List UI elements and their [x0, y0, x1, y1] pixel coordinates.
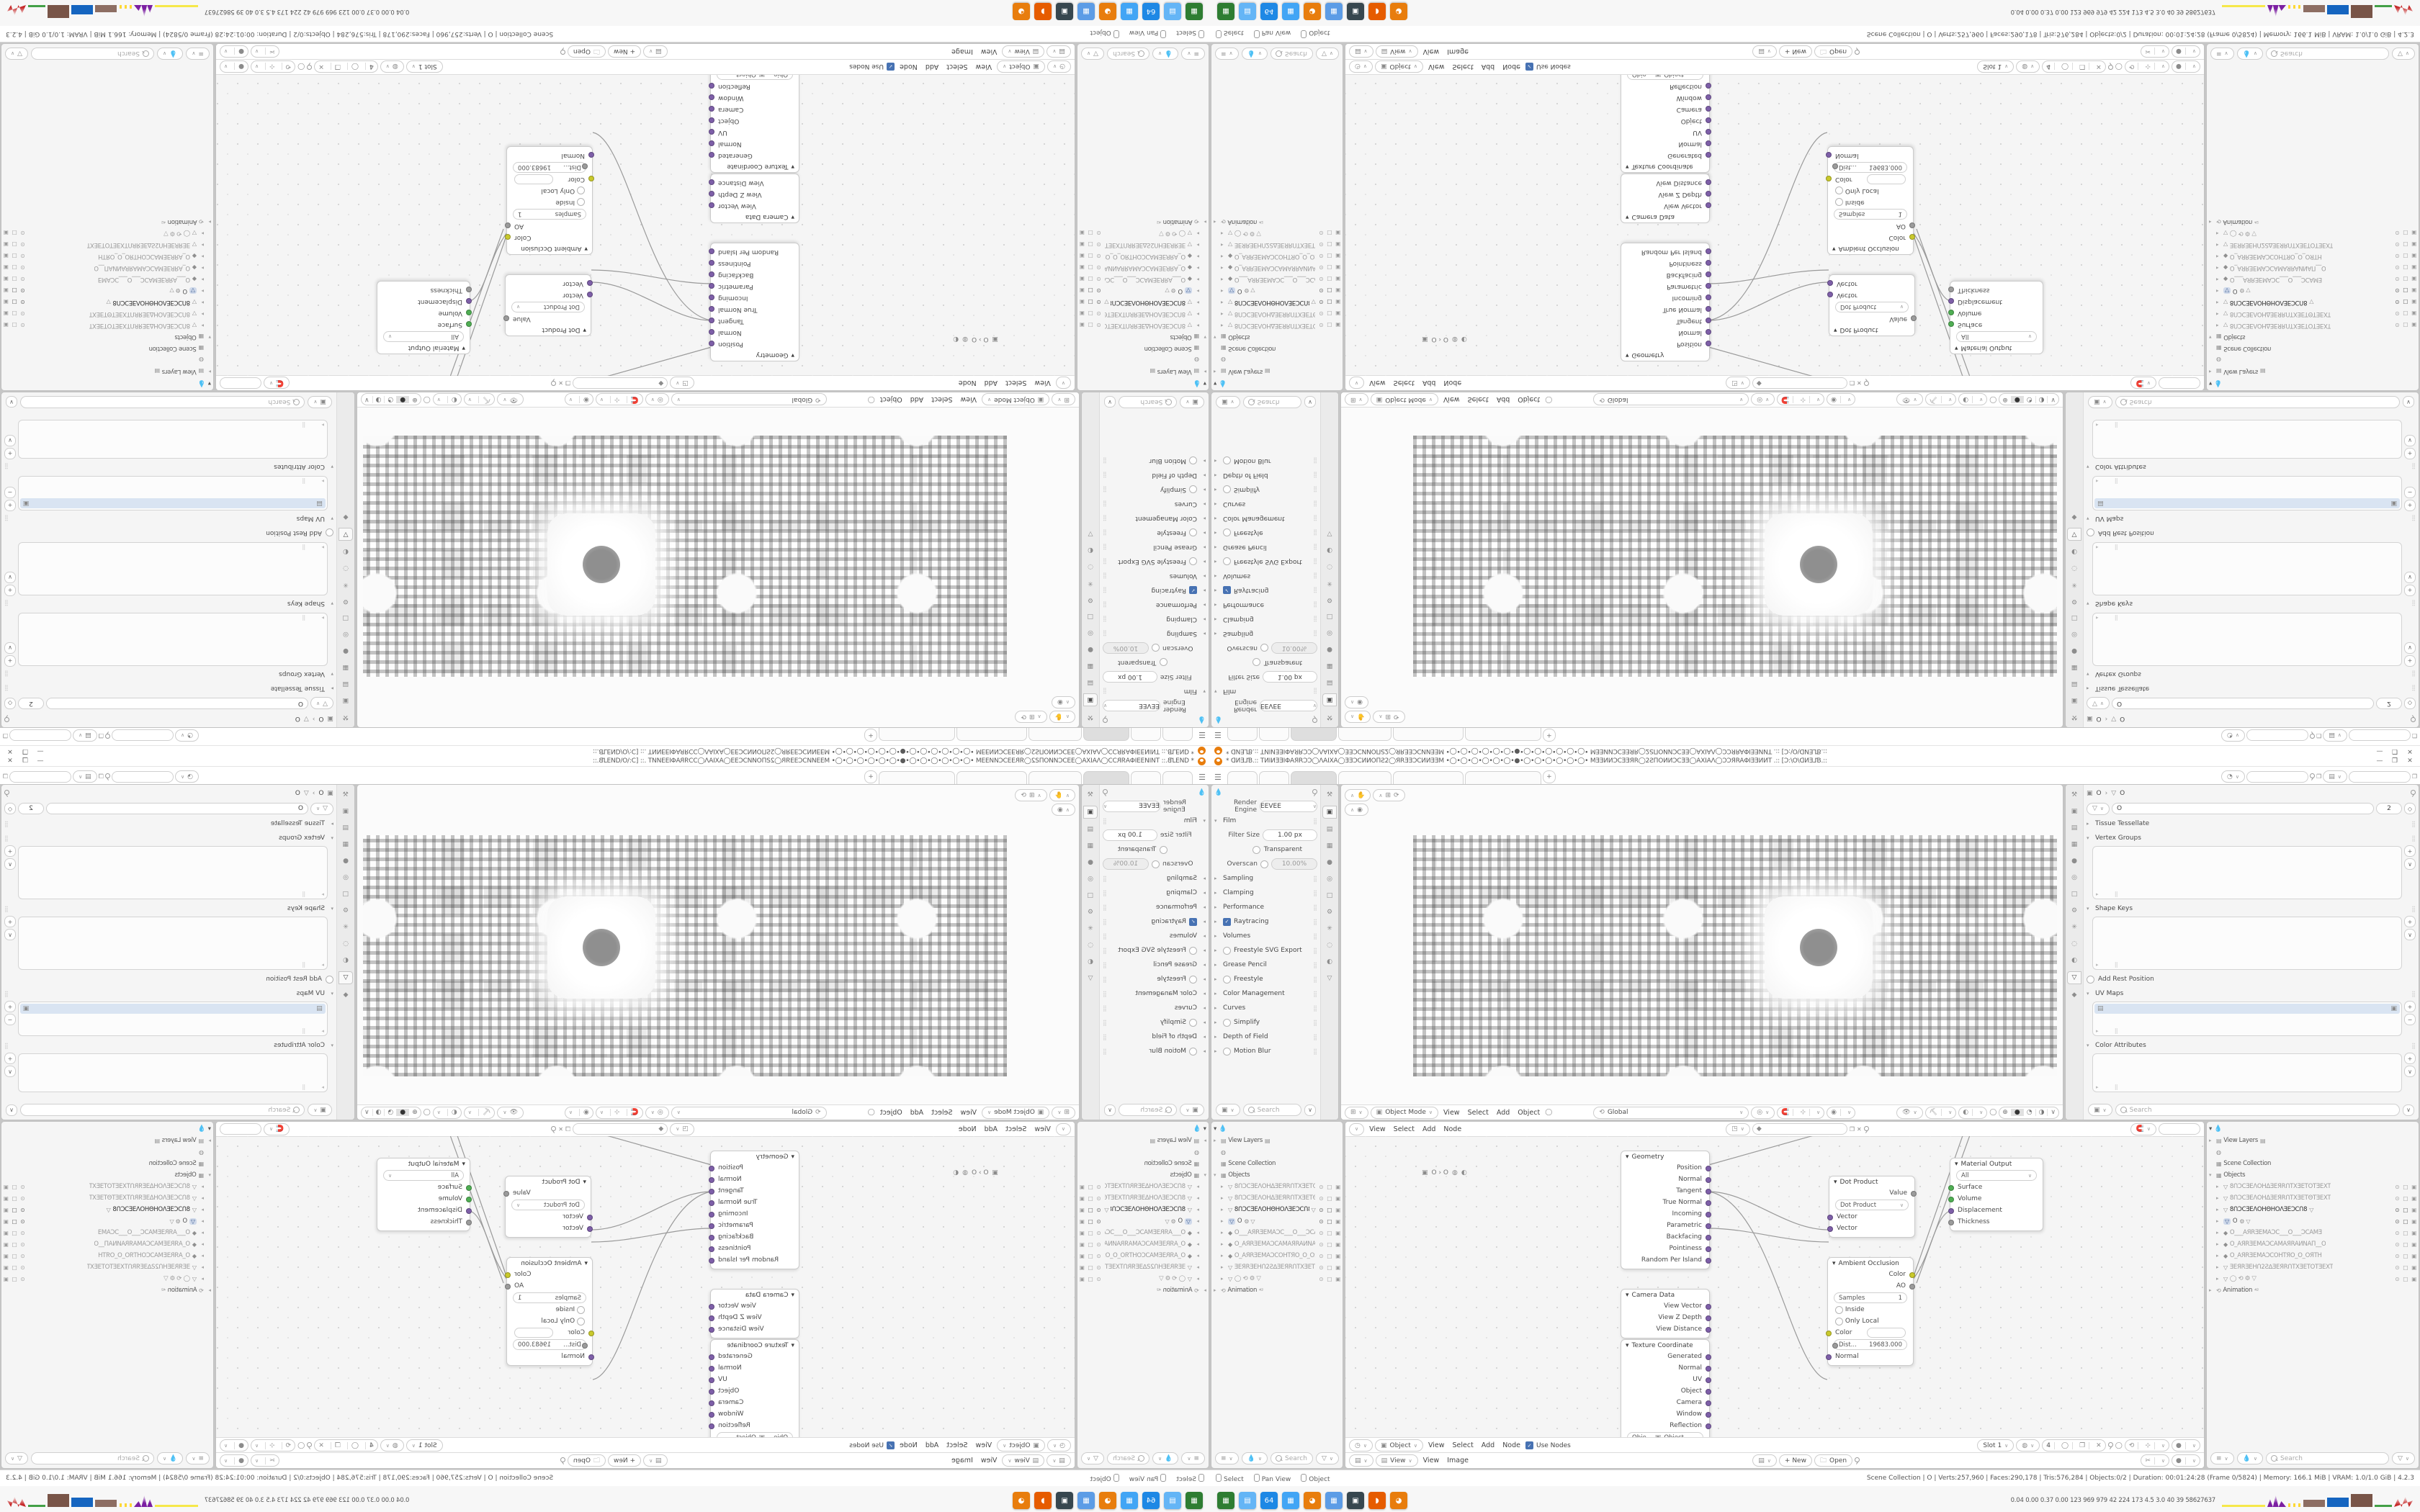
editor-type-dropdown[interactable]: ∨ [1056, 1123, 1071, 1135]
image-datablock-field[interactable]: 4 ◯ ❐ ✕ [2042, 60, 2105, 73]
shape-keys-list[interactable]: ▸ ⣿ [18, 542, 328, 595]
image-browse-dropdown[interactable]: ◍∨ [380, 1439, 404, 1452]
hide-eye-icon[interactable]: ⊙ [1097, 253, 1103, 260]
add-workspace-button[interactable]: + [1543, 770, 1556, 783]
node-title[interactable]: ▾Camera Data [711, 1290, 799, 1300]
editor-type-dropdown[interactable]: ⊞∨ [1052, 1107, 1075, 1119]
render-section-volumes[interactable]: ▸Volumes⣿ [1103, 569, 1206, 583]
minimize-button[interactable]: — [35, 747, 46, 755]
physics-properties-tab-icon[interactable]: ◌ [2068, 938, 2081, 950]
node-title[interactable]: ▾Ambient Occlusion [1828, 1258, 1913, 1269]
footer-menu-add[interactable]: Add [1479, 1441, 1497, 1449]
data-properties-tab-icon[interactable]: ▽ [2067, 971, 2081, 984]
workspace-tab[interactable] [1338, 728, 1391, 741]
image-new-icon[interactable]: ◯ [2058, 63, 2073, 71]
filter-funnel-dropdown[interactable]: ▽∨ [5, 1452, 28, 1464]
outliner-row-view-layers[interactable]: ▸▤View Layers▤ [1214, 366, 1340, 377]
outliner-object-row[interactable]: ▸▽◯ ⟲ ⚙ ▽⊙□▣ [4, 228, 211, 239]
filter-dropdown[interactable]: 💧∨ [2237, 1452, 2263, 1464]
outliner-object-row[interactable]: ▸◆O___AЯRƎEMAƆC___O___ƆCAMƎ⊙□▣ [1080, 274, 1206, 285]
object-properties-tab-icon[interactable]: □ [1323, 890, 1336, 901]
socket-distance[interactable] [1832, 1343, 1838, 1349]
taskbar-app-calculator[interactable]: ▦ [1282, 1492, 1299, 1509]
add-rest-position-toggle[interactable] [2087, 529, 2094, 537]
maximize-button[interactable]: ❐ [2389, 747, 2401, 755]
scene-browse-dropdown[interactable]: ◔∨ [2221, 729, 2245, 742]
material-browse-dropdown[interactable]: ◳∨ [670, 1123, 694, 1135]
ao-inside-toggle[interactable]: Inside [1828, 1304, 1913, 1315]
render-properties-tab-icon[interactable]: ▣ [1083, 693, 1098, 706]
footer-proportional-group[interactable]: ●∨ [220, 1439, 248, 1452]
disable-render-icon[interactable]: ▣ [1080, 276, 1086, 283]
socket-window[interactable] [709, 94, 714, 100]
display-mode-dropdown[interactable]: ≡∨ [1215, 1452, 1239, 1464]
film-section-header[interactable]: ▾Film⣿ [1214, 814, 1317, 828]
fake-user-shield-button[interactable]: ◇ [2404, 803, 2416, 814]
node-geometry[interactable]: ▾GeometryPositionNormalTangentTrue Norma… [710, 1151, 799, 1269]
node-ambient-occlusion[interactable]: ▾Ambient OcclusionColorAOSamples1 Inside… [506, 146, 593, 255]
node-canvas[interactable]: ▣O › O◍◐ ▾GeometryPositionNormalTangentT… [216, 74, 1075, 376]
viewport-3d[interactable]: ∧✋ ∧⊞⟳ ∧◉ ⊞∨ ▣Object Mode∨ View Select A… [1340, 392, 2063, 728]
socket-displacement[interactable] [1948, 1208, 1954, 1214]
outliner-object-row[interactable]: ▸▽O⚙ ▽⊙□▣ [4, 1215, 211, 1227]
mesh-browse-dropdown[interactable]: ▽∨ [2087, 698, 2110, 710]
properties-editor-icon[interactable]: 💧 [1198, 789, 1206, 796]
disable-render-icon[interactable]: ▣ [1334, 288, 1340, 294]
uvmap-add-button[interactable]: + [4, 1001, 16, 1012]
disable-viewport-icon[interactable]: □ [1325, 253, 1332, 260]
colorattr-specials-button[interactable]: ∨ [2404, 1066, 2416, 1077]
node-menu-select[interactable]: Select [1003, 1125, 1029, 1133]
socket-vector[interactable] [1827, 1226, 1833, 1232]
ao-only-local-toggle[interactable]: Only Local [507, 1315, 592, 1327]
disable-render-icon[interactable]: ▣ [4, 230, 10, 237]
footer-snap-group[interactable]: ⟲⊹∨ [2125, 1439, 2169, 1452]
close-button[interactable]: ✕ [4, 747, 16, 755]
outliner-object-row[interactable]: ▸▽8ՈƆCƎEΛOHΔƎEЯRՈTXƎETOTƎEXT⊙□▣ [1080, 320, 1206, 331]
socket-generated[interactable] [709, 1354, 714, 1360]
hide-eye-icon[interactable]: ⊙ [1097, 300, 1103, 306]
viewport-menu-add[interactable]: Add [1494, 1109, 1512, 1117]
image-copy-icon[interactable]: ❐ [2076, 63, 2089, 71]
ao-color-swatch[interactable] [1867, 174, 1906, 184]
shader-node-editor[interactable]: ∨ View Select Add Node ◳∨ ◆ ❐ ✕ 🧲∨ [1345, 1121, 2205, 1469]
render-section-volumes[interactable]: ▸Volumes⣿ [1103, 929, 1206, 943]
render-section-clamping[interactable]: ▸Clamping⣿ [1103, 886, 1206, 900]
socket-incoming[interactable] [1706, 1212, 1711, 1218]
render-properties-tab-icon[interactable]: ▣ [2068, 695, 2081, 706]
constraints-properties-tab-icon[interactable]: ◐ [1084, 544, 1097, 556]
gizmo-toggle[interactable]: ∧⊞⟳ [1015, 711, 1047, 723]
render-section-raytracing[interactable]: ▸✓Raytracing⣿ [1214, 914, 1317, 929]
uv-camera-icon[interactable]: ▣ [2390, 1005, 2397, 1012]
overlays-dropdown[interactable]: ◐∨ [1958, 394, 1987, 406]
pin-footer-icon[interactable] [307, 63, 312, 71]
disable-render-icon[interactable]: ▣ [2410, 253, 2416, 260]
socket-backfacing[interactable] [1706, 271, 1711, 277]
socket-tangent[interactable] [1706, 1189, 1711, 1194]
outliner-object-row[interactable]: ▸▽8ՈƆCƎEΛOHΔƎEЯRՈTXƎETΘTƎEXT⊙□▣ [4, 1192, 211, 1204]
socket-generated[interactable] [1706, 1354, 1711, 1360]
disable-render-icon[interactable]: ▣ [4, 311, 10, 318]
shapekey-specials-button[interactable]: ∨ [2404, 929, 2416, 940]
tissue-tessellate-section[interactable]: ▸Tissue Tessellate⣿ [2087, 681, 2416, 696]
node-title[interactable]: ▾Geometry [1621, 350, 1709, 361]
taskbar-app-file-manager[interactable]: ▦ [1217, 3, 1234, 20]
physics-properties-tab-icon[interactable]: ◌ [1323, 561, 1336, 572]
outliner-object-row[interactable]: ▸◆O_AЯRƎEMAƆCAMAЯRAИNAΠ__O⊙□▣ [1214, 262, 1340, 274]
outliner-object-row[interactable]: ▸◆O___AЯRƎEMAƆC___O___ƆCAMƎ⊙□▣ [2209, 274, 2416, 285]
disable-viewport-icon[interactable]: □ [12, 1253, 19, 1259]
hide-eye-icon[interactable]: ⊙ [1097, 1276, 1103, 1282]
overscan-toggle[interactable] [1152, 860, 1160, 868]
render-section-color-management[interactable]: ▸Color Management⣿ [1103, 511, 1206, 526]
material-browse-dropdown[interactable]: ◳∨ [1726, 377, 1750, 390]
viewport-menu-add[interactable]: Add [1494, 396, 1512, 404]
close-button[interactable]: ✕ [4, 757, 16, 765]
disable-render-icon[interactable]: ▣ [1080, 1230, 1086, 1236]
socket-tangent[interactable] [709, 318, 714, 323]
node-camera-data[interactable]: ▾Camera DataView VectorView Z DepthView … [1621, 1289, 1710, 1338]
outliner-row-objects[interactable]: ▾▦Objects [2209, 1169, 2416, 1181]
hide-eye-icon[interactable]: ⊙ [21, 1264, 27, 1271]
fake-user-shield-button[interactable]: ◇ [2404, 698, 2416, 709]
footer-circle-icon[interactable]: ◯ [297, 1442, 305, 1449]
unlink-material-icon[interactable]: ✕ [1857, 380, 1862, 387]
render-section-motion-blur[interactable]: ▸Motion Blur⣿ [1103, 454, 1206, 468]
outliner-object-row[interactable]: ▸▽ƎEЯRƎEHՈ2Ƨ∆ƎEЯRՈTXƎETOTƎEXT⊙□▣ [1214, 1261, 1340, 1273]
hide-eye-icon[interactable]: ⊙ [21, 323, 27, 329]
viewlayer-properties-tab-icon[interactable]: ▦ [339, 662, 352, 673]
shader-type-dropdown[interactable]: ◷∨ [1349, 60, 1373, 73]
particles-properties-tab-icon[interactable]: ✳ [2068, 922, 2081, 933]
footer-menu-node[interactable]: Node [897, 1441, 920, 1449]
mesh-browse-dropdown[interactable]: ▽∨ [310, 803, 333, 815]
socket-backfacing[interactable] [709, 1235, 714, 1241]
ao-distance-field[interactable]: Dist...19683.000 [513, 1339, 586, 1350]
object-properties-tab-icon[interactable]: □ [339, 612, 352, 624]
properties-options-button[interactable]: ∨ [6, 1104, 17, 1116]
texcoord-object-field[interactable]: Obje...▣Object [1627, 74, 1703, 80]
editor-type-button[interactable]: ▣∨ [2088, 396, 2112, 408]
tissue-tessellate-section[interactable]: ▸Tissue Tessellate⣿ [4, 816, 333, 831]
outliner-row-scene-collection[interactable]: ▦Scene Collection [1080, 343, 1206, 354]
disable-viewport-icon[interactable]: □ [12, 253, 19, 260]
viewport-menu-add[interactable]: Add [907, 396, 926, 404]
socket-surface[interactable] [466, 1185, 472, 1191]
socket-distance[interactable] [1832, 163, 1838, 169]
toggle-icon[interactable] [1223, 1048, 1231, 1056]
disable-viewport-icon[interactable]: □ [1325, 1195, 1332, 1202]
snap-extra-field[interactable] [2159, 1123, 2200, 1135]
toolbar-toggle[interactable]: ∧✋ [1049, 789, 1075, 801]
tool-properties-tab-icon[interactable]: ⚒ [1084, 711, 1097, 723]
image-new-button[interactable]: + New [1779, 1454, 1812, 1467]
fake-user-shield-button[interactable]: ◇ [4, 803, 16, 814]
render-engine-dropdown[interactable]: EEVEE∨ [1103, 700, 1160, 711]
shading-material-button[interactable]: ◔ [2024, 1109, 2036, 1116]
socket-pointiness[interactable] [1706, 260, 1711, 266]
copy-viewlayer-icon[interactable]: ❐ [2412, 732, 2417, 739]
editor-type-button[interactable]: ▣∨ [308, 1104, 332, 1116]
disable-render-icon[interactable]: ▣ [1334, 1253, 1340, 1259]
socket-vector[interactable] [587, 280, 593, 286]
shape-keys-list[interactable]: ▸ ⣿ [18, 917, 328, 970]
disable-viewport-icon[interactable]: □ [1325, 265, 1332, 271]
breadcrumb-data[interactable]: O [295, 715, 300, 722]
filter-funnel-dropdown[interactable]: ▽∨ [1316, 48, 1339, 60]
transparent-toggle[interactable] [1160, 659, 1168, 667]
socket-view-z-depth[interactable] [709, 191, 714, 197]
shader-node-editor[interactable]: ∨ View Select Add Node ◳∨ ◆ ❐ ✕ 🧲∨ [215, 1121, 1075, 1469]
toggle-icon[interactable] [1189, 558, 1197, 566]
viewport-3d[interactable]: ∧✋ ∧⊞⟳ ∧◉ ⊞∨ ▣Object Mode∨ View Select A… [357, 784, 1080, 1120]
options-toggle[interactable]: ∧◉ [1345, 804, 1368, 816]
disable-viewport-icon[interactable]: □ [1088, 1253, 1095, 1259]
scene-properties-tab-icon[interactable]: ● [2068, 645, 2081, 657]
viewlayer-browse-dropdown[interactable]: ▤∨ [73, 729, 97, 742]
shading-material-button[interactable]: ◔ [384, 1109, 396, 1116]
properties-options-button[interactable]: ∨ [6, 397, 17, 408]
node-canvas[interactable]: ▣O › O◍◐ ▾GeometryPositionNormalTangentT… [1345, 1136, 2204, 1438]
disable-viewport-icon[interactable]: □ [1088, 1241, 1095, 1248]
image-snip-group[interactable]: ✂∨ [251, 1454, 279, 1467]
vertex-groups-section[interactable]: ▾Vertex Groups⣿ [4, 667, 333, 681]
gizmo-toggle[interactable]: ∧⊞⟳ [1373, 789, 1404, 801]
outliner-row-animation[interactable]: ▸⟲Animation⁴² [1214, 1284, 1340, 1296]
render-section-simplify[interactable]: ▸Simplify⣿ [1214, 1015, 1317, 1030]
socket-normal[interactable] [1706, 329, 1711, 335]
data-properties-tab-icon[interactable]: ▽ [1084, 528, 1097, 539]
node-title[interactable]: ▾Material Output [377, 343, 470, 354]
outliner-object-row[interactable]: ▸▽ƎEЯRƎEHՈ2Ƨ∆ƎEЯRՈTXƎETOTƎEXT⊙□▣ [1080, 239, 1206, 251]
shape-keys-list[interactable]: ▸ ⣿ [2092, 917, 2402, 970]
filter-dropdown[interactable]: 💧∨ [157, 1452, 183, 1464]
hide-eye-icon[interactable]: ⊙ [1317, 1195, 1323, 1202]
outliner-row-animation[interactable]: ▸⟲Animation⁴² [1214, 216, 1340, 228]
outliner-row-world[interactable]: ◍ [4, 354, 211, 366]
gizmos-dropdown[interactable]: ⛏∨ [1925, 394, 1957, 406]
disable-viewport-icon[interactable]: □ [1088, 276, 1095, 283]
disable-render-icon[interactable]: ▣ [1334, 1264, 1340, 1271]
render-properties-tab-icon[interactable]: ▣ [339, 695, 352, 706]
filter-size-field[interactable]: 1.00 px [1263, 829, 1317, 841]
outliner-object-row[interactable]: ▸▽8ՈƆCƎEΛOHΔƎEЯRՈTXƎETΘTƎEXT⊙□▣ [2209, 308, 2416, 320]
disable-render-icon[interactable]: ▣ [1334, 265, 1340, 271]
render-section-depth-of-field[interactable]: ▸Depth of Field⣿ [1214, 1030, 1317, 1044]
mode-extra-icon[interactable]: ◯ [1545, 1109, 1552, 1116]
disable-viewport-icon[interactable]: □ [1088, 1184, 1095, 1190]
workspace-tab[interactable] [1227, 728, 1258, 741]
viewlayer-properties-tab-icon[interactable]: ▦ [1323, 840, 1336, 852]
output-properties-tab-icon[interactable]: ▤ [1323, 677, 1336, 688]
outliner-object-row[interactable]: ▸▽8ՈƆCƎEΛOHΘHOΛƎEƆCՈ8▽⊙□▣ [4, 297, 211, 308]
toggle-icon[interactable] [1189, 976, 1197, 984]
outliner-row-world[interactable]: ◍ [1080, 354, 1206, 366]
node-title[interactable]: ▾Texture Coordinate [711, 161, 799, 172]
socket-color[interactable] [505, 234, 511, 240]
image-snip-group[interactable]: ✂∨ [2141, 45, 2169, 58]
image-menu-view[interactable]: View [978, 1457, 1000, 1464]
hide-eye-icon[interactable]: ⊙ [21, 1276, 27, 1282]
options-toggle[interactable]: ∧◉ [1052, 696, 1075, 708]
image-browse-dropdown-2[interactable]: ▤∨ [643, 45, 668, 58]
shapekey-specials-button[interactable]: ∨ [4, 929, 16, 940]
shading-dropdown[interactable]: ∨ [362, 396, 372, 403]
hide-eye-icon[interactable]: ⊙ [2393, 1218, 2399, 1225]
socket-value[interactable] [503, 315, 509, 321]
shading-solid-button[interactable]: ● [2012, 1109, 2024, 1116]
viewlayer-browse-dropdown[interactable]: ▤∨ [2323, 729, 2347, 742]
copy-scene-icon[interactable]: ❐ [2316, 773, 2321, 780]
copy-material-icon[interactable]: ❐ [565, 380, 570, 387]
ao-inside-toggle[interactable]: Inside [507, 197, 592, 208]
filter-funnel-dropdown[interactable]: ▽∨ [2392, 1452, 2415, 1464]
disable-viewport-icon[interactable]: □ [2401, 1264, 2408, 1271]
pin-node-icon[interactable] [551, 1125, 556, 1133]
outliner-object-row[interactable]: ▸◆O_AЯRƎEMAƆCAMAЯRAИNAΠ__O⊙□▣ [4, 1238, 211, 1250]
footer-menu-view[interactable]: View [973, 63, 995, 71]
output-target-dropdown[interactable]: All∨ [383, 1170, 464, 1181]
close-button[interactable]: ✕ [2404, 757, 2416, 765]
outliner-object-row[interactable]: ▸◆O___AЯRƎEMAƆC___O___ƆCAMƎ⊙□▣ [4, 1227, 211, 1238]
viewport-menu-add[interactable]: Add [907, 1109, 926, 1117]
particles-properties-tab-icon[interactable]: ✳ [1084, 577, 1097, 589]
disable-viewport-icon[interactable]: □ [12, 230, 19, 237]
editor-type-button[interactable]: ▣∨ [1216, 1104, 1240, 1116]
pin-image-icon[interactable] [560, 1457, 565, 1464]
socket-reflection[interactable] [709, 1423, 714, 1429]
outliner-object-row[interactable]: ▸▽8ՈƆCƎEΛOHΔƎEЯRՈTXƎETΘTƎEXT⊙□▣ [1214, 308, 1340, 320]
scene-properties-tab-icon[interactable]: ● [339, 855, 352, 867]
vgroup-add-button[interactable]: + [2404, 655, 2416, 667]
image-copy-icon[interactable]: ❐ [331, 63, 344, 71]
disable-viewport-icon[interactable]: □ [12, 300, 19, 306]
outliner-object-row[interactable]: ▸◆O_AЯRƎEMAƆCAMAЯRAИNAΠ__O⊙□▣ [1080, 262, 1206, 274]
ao-distance-field[interactable]: Dist...19683.000 [1834, 1339, 1907, 1350]
pin-id-icon[interactable] [1312, 716, 1317, 723]
use-nodes-toggle[interactable]: ✓Use Nodes [1525, 63, 1571, 71]
hide-eye-icon[interactable]: ⊙ [1317, 230, 1323, 237]
footer-snap-group[interactable]: ⟲⊹∨ [251, 1439, 295, 1452]
node-menu-select[interactable]: Select [1003, 379, 1029, 387]
filter-dropdown[interactable]: 💧∨ [157, 48, 183, 60]
hide-eye-icon[interactable]: ⊙ [1097, 1253, 1103, 1259]
pin-footer-icon[interactable] [307, 1441, 312, 1449]
render-section-sampling[interactable]: ▸Sampling⣿ [1214, 871, 1317, 886]
render-section-clamping[interactable]: ▸Clamping⣿ [1214, 612, 1317, 626]
outliner-object-row[interactable]: ▸▽8ՈƆCƎEΛOHΔƎEЯRՈTXƎETΘTƎEXT⊙□▣ [1080, 1192, 1206, 1204]
disable-viewport-icon[interactable]: □ [12, 1218, 19, 1225]
image-editor-type-dropdown[interactable]: ▤∨ [1047, 1454, 1071, 1467]
mesh-browse-dropdown[interactable]: ▽∨ [310, 698, 333, 710]
hide-eye-icon[interactable]: ⊙ [21, 242, 27, 248]
disable-viewport-icon[interactable]: □ [1088, 1207, 1095, 1213]
hide-eye-icon[interactable]: ⊙ [2393, 253, 2399, 260]
hide-eye-icon[interactable]: ⊙ [21, 1195, 27, 1202]
render-section-raytracing[interactable]: ▸✓Raytracing⣿ [1214, 583, 1317, 598]
shading-material-button[interactable]: ◔ [384, 396, 396, 403]
workspace-tab[interactable] [1227, 771, 1258, 784]
colorattr-specials-button[interactable]: ∨ [4, 1066, 16, 1077]
output-target-dropdown[interactable]: All∨ [383, 331, 464, 342]
outliner-row-animation[interactable]: ▸⟲Animation⁴² [1080, 216, 1206, 228]
colorattr-add-button[interactable]: + [4, 1053, 16, 1064]
node-geometry[interactable]: ▾GeometryPositionNormalTangentTrue Norma… [1621, 243, 1710, 361]
socket-view-z-depth[interactable] [709, 1315, 714, 1321]
disable-viewport-icon[interactable]: □ [2401, 1195, 2408, 1202]
socket-object[interactable] [1706, 117, 1711, 123]
viewport-menu-object[interactable]: Object [1515, 1109, 1543, 1117]
copy-scene-icon[interactable]: ❐ [99, 773, 104, 780]
color-attributes-section[interactable]: ▾Color Attributes⣿ [2087, 1038, 2416, 1053]
outliner-search-input[interactable]: Search [31, 48, 154, 60]
render-section-curves[interactable]: ▸Curves⣿ [1214, 1001, 1317, 1015]
user-count-button[interactable]: 2 [2376, 803, 2402, 814]
workspace-tab[interactable] [1465, 728, 1541, 741]
socket-thickness[interactable] [466, 1220, 472, 1225]
shading-rendered-button[interactable]: ◑ [2036, 1109, 2048, 1116]
disable-render-icon[interactable]: ▣ [1334, 242, 1340, 248]
outliner-row-world[interactable]: ◍ [4, 1146, 211, 1158]
render-section-curves[interactable]: ▸Curves⣿ [1214, 497, 1317, 511]
mode-dropdown[interactable]: ▣Object Mode∨ [982, 1107, 1049, 1119]
node-title[interactable]: ▾Camera Data [1621, 1290, 1709, 1300]
socket-color[interactable] [1826, 176, 1832, 181]
viewlayer-properties-tab-icon[interactable]: ▦ [1323, 660, 1336, 672]
editor-type-dropdown[interactable]: ∨ [1349, 377, 1364, 390]
disable-viewport-icon[interactable]: □ [2401, 311, 2408, 318]
workspace-tab[interactable] [1028, 728, 1082, 741]
hide-eye-icon[interactable]: ⊙ [1097, 265, 1103, 271]
output-properties-tab-icon[interactable]: ▤ [339, 822, 352, 834]
outliner-object-row[interactable]: ▸▽8ՈƆCƎEΛOHΘHOΛƎEƆCՈ8▽⊙□▣ [1080, 297, 1206, 308]
hide-eye-icon[interactable]: ⊙ [2393, 1207, 2399, 1213]
toggle-icon[interactable] [1189, 529, 1197, 537]
disable-render-icon[interactable]: ▣ [2410, 230, 2416, 237]
pin-id-icon[interactable] [1103, 789, 1108, 796]
disable-render-icon[interactable]: ▣ [4, 323, 10, 329]
pin-image-icon[interactable] [1855, 1457, 1860, 1464]
hide-eye-icon[interactable]: ⊙ [1317, 288, 1323, 294]
socket-pointiness[interactable] [1706, 1246, 1711, 1252]
workspace-tab[interactable] [1131, 771, 1161, 784]
snap-group[interactable]: 🧲⊹∨ [1777, 394, 1824, 406]
disable-render-icon[interactable]: ▣ [1080, 1241, 1086, 1248]
disable-render-icon[interactable]: ▣ [2410, 1184, 2416, 1190]
properties-search-input[interactable]: Search [1119, 396, 1177, 408]
socket-volume[interactable] [1948, 1197, 1954, 1202]
output-target-dropdown[interactable]: All∨ [1956, 331, 2037, 342]
outliner-object-row[interactable]: ▸▽◯ ⟲ ⚙ ▽⊙□▣ [2209, 1273, 2416, 1284]
socket-random-per-island[interactable] [709, 248, 714, 254]
mesh-name-field[interactable]: O [2112, 803, 2374, 814]
footer-menu-view[interactable]: View [1425, 1441, 1448, 1449]
disable-render-icon[interactable]: ▣ [1334, 1207, 1340, 1213]
node-menu-node[interactable]: Node [1440, 1125, 1464, 1133]
uv-maps-section[interactable]: ▾UV Maps⣿ [4, 511, 333, 526]
pin-id-icon[interactable] [1312, 789, 1317, 796]
uv-camera-icon[interactable]: ▣ [23, 500, 30, 507]
image-open-button[interactable]: 🗀Open [568, 1454, 606, 1467]
shading-wireframe-button[interactable]: ⊕ [1999, 1109, 2012, 1116]
socket-color[interactable] [1909, 1272, 1915, 1278]
node-title[interactable]: ▾Camera Data [1621, 212, 1709, 222]
socket-thickness[interactable] [466, 287, 472, 292]
outliner-object-row[interactable]: ▸▽◯ ⟲ ⚙ ▽⊙□▣ [4, 1273, 211, 1284]
taskbar-app-file-manager[interactable]: ▦ [1186, 3, 1203, 20]
image-browse-dropdown-2[interactable]: ▤∨ [643, 1454, 668, 1467]
